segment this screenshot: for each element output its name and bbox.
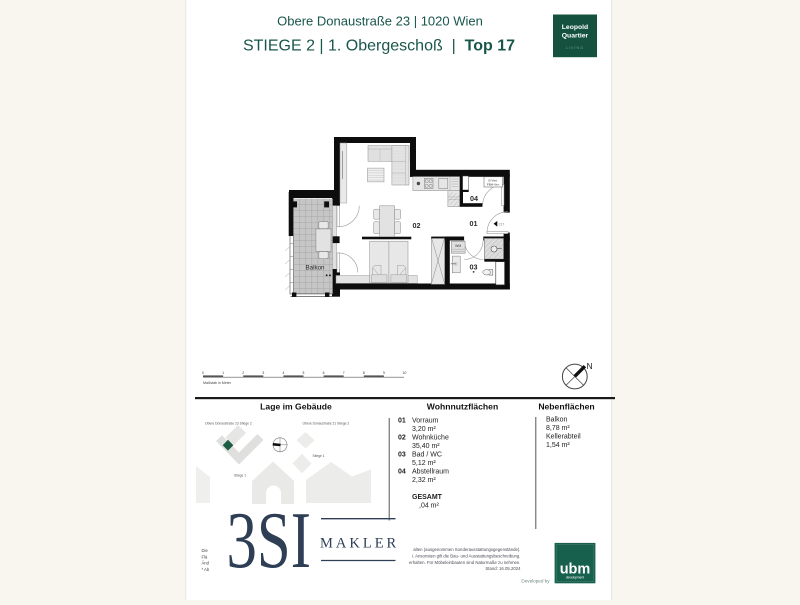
svg-text:Abstellraum: Abstellraum bbox=[412, 469, 449, 476]
svg-text:Stiege 1: Stiege 1 bbox=[234, 474, 246, 478]
svg-text:6: 6 bbox=[323, 371, 325, 375]
svg-text:Wohnküche: Wohnküche bbox=[412, 435, 449, 442]
svg-text:Developed by: Developed by bbox=[521, 579, 550, 584]
svg-text:Balkon: Balkon bbox=[546, 417, 568, 424]
svg-text:02: 02 bbox=[413, 221, 421, 230]
svg-text:Obere Donaustraße 21 Stiege 2: Obere Donaustraße 21 Stiege 2 bbox=[303, 422, 350, 426]
svg-text:Flä: Flä bbox=[202, 554, 208, 559]
svg-text:STIEGE 2 | 1. Obergeschoß |: STIEGE 2 | 1. Obergeschoß | Top 17 bbox=[243, 38, 515, 55]
svg-text:MAKLER: MAKLER bbox=[320, 536, 399, 552]
svg-text:2,32 m²: 2,32 m² bbox=[412, 477, 436, 484]
svg-text:1: 1 bbox=[222, 371, 224, 375]
svg-text:Nebenflächen: Nebenflächen bbox=[538, 402, 594, 412]
svg-text:04: 04 bbox=[398, 469, 406, 476]
svg-text:4: 4 bbox=[282, 371, 284, 375]
svg-text:3: 3 bbox=[262, 371, 264, 375]
svg-text:Lage im Gebäude: Lage im Gebäude bbox=[260, 402, 332, 412]
svg-text:Obere Donaustraße 23 Stiege 2: Obere Donaustraße 23 Stiege 2 bbox=[205, 422, 252, 426]
svg-text:Quartier: Quartier bbox=[562, 33, 589, 40]
svg-text:02: 02 bbox=[398, 435, 406, 442]
svg-text:Obere Donaustraße 23 | 1020 Wi: Obere Donaustraße 23 | 1020 Wien bbox=[277, 14, 483, 29]
svg-text:Kellerabteil: Kellerabteil bbox=[546, 434, 581, 441]
svg-text:Balkon: Balkon bbox=[306, 265, 325, 272]
svg-text:01: 01 bbox=[398, 418, 406, 425]
svg-text:35,40 m²: 35,40 m² bbox=[412, 443, 440, 450]
svg-text:FBH-Ver.: FBH-Ver. bbox=[487, 183, 500, 187]
svg-text:2: 2 bbox=[242, 371, 244, 375]
svg-text:WM: WM bbox=[455, 244, 461, 248]
svg-text:LIVING: LIVING bbox=[566, 46, 584, 50]
svg-text:03: 03 bbox=[398, 452, 406, 459]
svg-text:erhalten. Für Möbeleinbauten s: erhalten. Für Möbeleinbauten sind Naturm… bbox=[409, 560, 521, 565]
svg-text:N: N bbox=[587, 361, 593, 371]
svg-text:10: 10 bbox=[403, 371, 407, 375]
svg-text:Bad / WC: Bad / WC bbox=[412, 452, 442, 459]
svg-text:alten (ausgenommen Sonderausst: alten (ausgenommen Sonderausstattungsgeg… bbox=[413, 547, 520, 552]
svg-text:5: 5 bbox=[303, 371, 305, 375]
svg-text:Stiege 1: Stiege 1 bbox=[313, 454, 325, 458]
svg-text:03: 03 bbox=[470, 262, 478, 271]
svg-text:01: 01 bbox=[470, 219, 478, 228]
svg-text:Änd: Änd bbox=[202, 561, 210, 566]
svg-text:04: 04 bbox=[470, 194, 478, 203]
svg-text:,04 m²: ,04 m² bbox=[419, 503, 440, 510]
svg-text:3,20 m²: 3,20 m² bbox=[412, 426, 436, 433]
svg-text:Maßstab in Meter: Maßstab in Meter bbox=[203, 381, 232, 385]
svg-text:Vorraum: Vorraum bbox=[412, 418, 439, 425]
svg-text:Stand: 16.05.2024: Stand: 16.05.2024 bbox=[485, 566, 521, 571]
svg-text:8: 8 bbox=[363, 371, 365, 375]
svg-text:GESAMT: GESAMT bbox=[412, 494, 443, 501]
svg-text:Leopold: Leopold bbox=[562, 24, 588, 31]
svg-text:9: 9 bbox=[383, 371, 385, 375]
svg-text:217: 217 bbox=[499, 222, 505, 226]
svg-text:5,12 m²: 5,12 m² bbox=[412, 460, 436, 467]
svg-text:7: 7 bbox=[343, 371, 345, 375]
svg-text:Wohnnutzflächen: Wohnnutzflächen bbox=[427, 402, 498, 412]
svg-text:i. Ansonsten gilt die Bau- und: i. Ansonsten gilt die Bau- und Ausstattu… bbox=[412, 554, 520, 559]
svg-text:0: 0 bbox=[202, 371, 204, 375]
svg-text:Die: Die bbox=[202, 548, 209, 553]
svg-text:8,78 m²: 8,78 m² bbox=[546, 425, 570, 432]
svg-text:* Ab: * Ab bbox=[202, 567, 210, 572]
svg-text:1,54 m²: 1,54 m² bbox=[546, 442, 570, 449]
svg-text:development: development bbox=[566, 576, 584, 580]
svg-text:3SI: 3SI bbox=[227, 497, 311, 585]
